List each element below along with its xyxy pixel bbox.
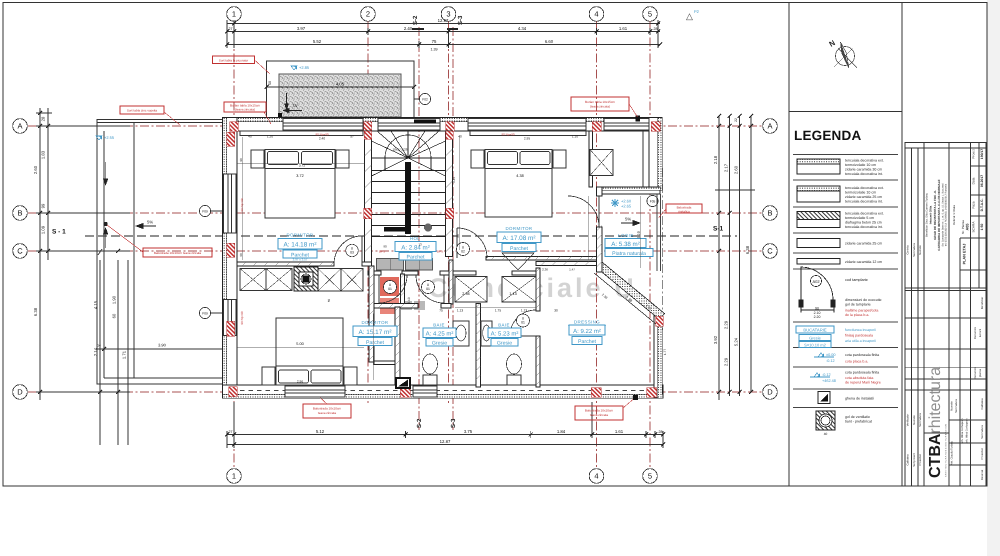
svg-text:de reperul Marii Negre: de reperul Marii Negre xyxy=(845,381,881,385)
svg-text:Beneficiar: Beneficiar xyxy=(980,297,984,310)
svg-text:90: 90 xyxy=(383,245,387,249)
svg-text:BF 5: BF 5 xyxy=(379,250,386,254)
svg-text:Arh. Claudiu Turlanu: Arh. Claudiu Turlanu xyxy=(951,441,954,465)
svg-text:2.60: 2.60 xyxy=(734,165,739,174)
svg-text:BAIE: BAIE xyxy=(433,323,445,328)
svg-text:02: 02 xyxy=(461,250,465,254)
svg-text:12.87: 12.87 xyxy=(438,18,449,23)
svg-text:99: 99 xyxy=(41,203,46,208)
svg-text:75: 75 xyxy=(432,39,437,44)
svg-text:termoizolatie 10 cm: termoizolatie 10 cm xyxy=(845,191,876,195)
svg-text:F05: F05 xyxy=(650,199,656,203)
svg-text:Parchet: Parchet xyxy=(510,246,528,252)
svg-text:DRESSING: DRESSING xyxy=(574,320,600,325)
svg-text:Denumire: Denumire xyxy=(973,366,977,379)
svg-text:Nr. Plansa: Nr. Plansa xyxy=(961,220,965,234)
svg-text:A: 2.84 m²: A: 2.84 m² xyxy=(401,244,430,251)
svg-text:plansa: plansa xyxy=(978,368,982,377)
svg-text:lucrarii: lucrarii xyxy=(978,329,982,338)
svg-text:metalica: metalica xyxy=(678,209,690,213)
svg-text:+2.85: +2.85 xyxy=(299,65,310,70)
svg-text:A: 4.25 m²: A: 4.25 m² xyxy=(426,331,454,338)
svg-text:S - 1: S - 1 xyxy=(52,229,66,236)
svg-text:B: B xyxy=(17,209,22,218)
svg-text:△: △ xyxy=(686,11,693,21)
svg-text:1.83: 1.83 xyxy=(41,150,46,159)
svg-text:40: 40 xyxy=(248,135,252,139)
svg-text:03: 03 xyxy=(350,251,354,255)
svg-text:Data: Data xyxy=(972,177,976,184)
svg-text:tencuiala decorativa int.: tencuiala decorativa int. xyxy=(845,225,883,229)
svg-text:ghena de instalatii: ghena de instalatii xyxy=(845,397,874,401)
svg-text:2.36: 2.36 xyxy=(462,292,469,296)
svg-text:teava zincata: teava zincata xyxy=(318,411,337,415)
svg-text:cod tamplarie: cod tamplarie xyxy=(845,278,868,282)
svg-text:S=10.10 m2: S=10.10 m2 xyxy=(804,342,826,347)
svg-text:zidarie caramida 25 cm: zidarie caramida 25 cm xyxy=(845,195,882,199)
svg-text:75: 75 xyxy=(439,309,443,313)
svg-text:tencuiala decorativa int.: tencuiala decorativa int. xyxy=(845,172,883,176)
svg-text:A: 14.18 m²: A: 14.18 m² xyxy=(283,242,316,249)
svg-text:2.29: 2.29 xyxy=(724,357,729,366)
svg-text:14: 14 xyxy=(97,344,101,348)
svg-text:90: 90 xyxy=(456,234,460,238)
svg-text:Balustrada 10x10cm teava zinca: Balustrada 10x10cm teava zincata xyxy=(154,251,202,255)
svg-text:tencuiala decorativa ext.: tencuiala decorativa ext. xyxy=(845,212,884,216)
svg-text:.28: .28 xyxy=(658,430,663,434)
svg-text:zidarie caramida 30 cm: zidarie caramida 30 cm xyxy=(845,168,882,172)
svg-text:P2: P2 xyxy=(694,9,700,14)
svg-text:3.97 x 3.57: 3.97 x 3.57 xyxy=(293,258,308,262)
svg-text:PLAN ETAJ: PLAN ETAJ xyxy=(963,244,967,265)
svg-text:5.12: 5.12 xyxy=(316,429,325,434)
svg-text:A: A xyxy=(17,122,22,131)
svg-text:+2.65: +2.65 xyxy=(621,204,632,209)
svg-text:Semnatura: Semnatura xyxy=(980,425,984,439)
svg-text:aria utila a incaperii: aria utila a incaperii xyxy=(845,339,876,343)
svg-text:LOGIE: LOGIE xyxy=(618,233,633,238)
svg-text:57: 57 xyxy=(350,135,354,139)
svg-text:01: 01 xyxy=(388,287,392,291)
svg-text:S-2: S-2 xyxy=(416,418,423,428)
svg-text:Intocmit Oltia: Intocmit Oltia xyxy=(929,205,933,224)
svg-text:2.60: 2.60 xyxy=(33,165,38,174)
svg-text:D: D xyxy=(767,388,773,397)
svg-text:SCARA: SCARA xyxy=(972,221,976,233)
svg-text:3.92: 3.92 xyxy=(713,335,718,344)
svg-text:Referat nr./Data: Referat nr./Data xyxy=(952,205,956,225)
svg-text:2: 2 xyxy=(366,10,370,19)
svg-text:3.72: 3.72 xyxy=(296,174,303,178)
svg-text:termoizolatie 10 cm: termoizolatie 10 cm xyxy=(845,163,876,167)
svg-text:2.19: 2.19 xyxy=(637,231,641,238)
svg-text:Semnatura: Semnatura xyxy=(954,399,958,413)
svg-text:+462.48: +462.48 xyxy=(822,379,836,383)
svg-text:A: 17.08 m²: A: 17.08 m² xyxy=(502,235,535,242)
svg-text:2.17: 2.17 xyxy=(724,163,729,172)
svg-text:tencuiala decorativa ext.: tencuiala decorativa ext. xyxy=(845,159,884,163)
svg-text:BUCATARIE: BUCATARIE xyxy=(803,327,827,332)
svg-text:3.45: 3.45 xyxy=(452,177,456,183)
svg-text:cota pardoseala finita: cota pardoseala finita xyxy=(845,353,879,357)
svg-text:Arh. Mihai Corhapean: Arh. Mihai Corhapean xyxy=(961,418,964,444)
svg-text:30: 30 xyxy=(554,309,558,313)
svg-text:1.84: 1.84 xyxy=(557,429,566,434)
svg-text:1.61: 1.61 xyxy=(615,429,624,434)
svg-text:3.75: 3.75 xyxy=(464,429,473,434)
svg-text:1: 1 xyxy=(232,10,236,19)
svg-text:(teava zincata): (teava zincata) xyxy=(590,105,610,109)
svg-text:2.40: 2.40 xyxy=(404,26,413,31)
svg-text:A: A xyxy=(767,122,772,131)
svg-text:.27: .27 xyxy=(228,27,233,31)
svg-text:40: 40 xyxy=(458,135,462,139)
svg-text:A02: A02 xyxy=(812,279,820,284)
svg-text:Burlan tabla 10x15cm: Burlan tabla 10x15cm xyxy=(585,100,615,104)
svg-text:TN: TN xyxy=(292,103,297,108)
svg-text:1: 1 xyxy=(232,472,236,481)
svg-text:S-1: S-1 xyxy=(713,226,724,233)
svg-text:1.13: 1.13 xyxy=(509,292,516,296)
svg-text:Balustrada 10x10cm: Balustrada 10x10cm xyxy=(313,407,342,411)
svg-text:Semnatura: Semnatura xyxy=(918,413,922,427)
svg-text:D: D xyxy=(17,388,23,397)
svg-text:6.60: 6.60 xyxy=(545,39,554,44)
svg-text:DORMITOR: DORMITOR xyxy=(286,233,313,238)
svg-text:18x17.5/28: 18x17.5/28 xyxy=(393,148,408,152)
svg-text:6.38: 6.38 xyxy=(33,307,38,316)
svg-text:diafragma beton 25 cm: diafragma beton 25 cm xyxy=(845,221,882,225)
svg-text:Numele: Numele xyxy=(918,245,922,255)
svg-text:Parchet: Parchet xyxy=(366,340,384,346)
svg-text:2.96: 2.96 xyxy=(297,380,303,384)
svg-text:50: 50 xyxy=(268,81,272,85)
svg-text:.27: .27 xyxy=(228,430,233,434)
svg-text:F09: F09 xyxy=(202,209,208,213)
svg-text:tel. 0722.000.000 CUI RO34562: tel. 0722.000.000 CUI RO345621 J40/0000/… xyxy=(945,183,948,246)
svg-text:±0.00: ±0.00 xyxy=(826,353,835,357)
svg-text:40: 40 xyxy=(824,432,828,436)
svg-text:Gresie: Gresie xyxy=(809,335,822,340)
svg-text:A: 5.23 m²: A: 5.23 m² xyxy=(491,331,519,338)
svg-text:LEGENDA: LEGENDA xyxy=(794,128,861,143)
svg-text:4: 4 xyxy=(594,10,598,19)
svg-text:finisaj pardoseala: finisaj pardoseala xyxy=(845,334,873,338)
svg-text:01: 01 xyxy=(521,321,525,325)
svg-text:Sort tabla zinc vopsita: Sort tabla zinc vopsita xyxy=(127,108,158,112)
svg-text:2.29: 2.29 xyxy=(724,320,729,329)
svg-text:1.75: 1.75 xyxy=(495,309,501,313)
svg-text:1.13: 1.13 xyxy=(521,309,527,313)
svg-text:1.71: 1.71 xyxy=(122,350,127,359)
svg-text:cota pardoseala finita: cota pardoseala finita xyxy=(845,371,879,375)
svg-text:D.T.A.C.: D.T.A.C. xyxy=(980,199,984,212)
svg-text:5.52: 5.52 xyxy=(313,39,322,44)
svg-text:06.2017: 06.2017 xyxy=(980,175,984,187)
svg-text:(teava zincata): (teava zincata) xyxy=(235,107,255,111)
svg-text:1.77: 1.77 xyxy=(663,349,667,355)
svg-text:A: 9.22 m²: A: 9.22 m² xyxy=(573,328,601,335)
svg-text:tiant - prefabricat: tiant - prefabricat xyxy=(845,420,872,424)
svg-text:teava zincata: teava zincata xyxy=(590,413,609,417)
svg-text:1.61: 1.61 xyxy=(619,26,628,31)
svg-text:-0.12: -0.12 xyxy=(822,373,831,377)
svg-text:90 Np=90: 90 Np=90 xyxy=(240,311,244,324)
svg-text:28: 28 xyxy=(41,116,46,121)
svg-text:Numele: Numele xyxy=(912,415,916,425)
svg-text:cota placa b.a.: cota placa b.a. xyxy=(845,360,868,364)
svg-text:Piatra naturala: Piatra naturala xyxy=(612,251,646,257)
svg-text:12.87: 12.87 xyxy=(440,439,451,444)
svg-text:2.95: 2.95 xyxy=(524,137,530,141)
svg-text:DORMITOR: DORMITOR xyxy=(361,320,388,325)
svg-text:HOL: HOL xyxy=(410,236,420,241)
svg-text:1.90: 1.90 xyxy=(112,295,117,304)
svg-text:190/17: 190/17 xyxy=(980,149,984,159)
svg-text:5.24: 5.24 xyxy=(734,337,739,346)
svg-text:S-3: S-3 xyxy=(450,418,457,428)
svg-text:termoizolatie 5 cm: termoizolatie 5 cm xyxy=(845,216,874,220)
svg-text:4.34: 4.34 xyxy=(518,26,527,31)
svg-text:60: 60 xyxy=(112,313,117,318)
svg-text:13: 13 xyxy=(418,243,422,247)
svg-text:1.47: 1.47 xyxy=(569,268,575,272)
svg-text:B: B xyxy=(767,209,772,218)
svg-text:1.39: 1.39 xyxy=(431,48,438,52)
svg-text:inaltime parapet/cota: inaltime parapet/cota xyxy=(845,309,878,313)
svg-text:Sort tabla la picurator: Sort tabla la picurator xyxy=(219,58,248,62)
svg-text:de la placa b.a.: de la placa b.a. xyxy=(845,313,869,317)
svg-text:4.38: 4.38 xyxy=(516,174,523,178)
svg-text:Calitatea: Calitatea xyxy=(906,454,910,465)
svg-text:Verificator: Verificator xyxy=(906,414,910,427)
svg-text:1.13: 1.13 xyxy=(457,309,463,313)
svg-text:Proect: Proect xyxy=(972,149,976,158)
svg-text:Parchet: Parchet xyxy=(407,255,425,261)
svg-text:gol de tamplarie: gol de tamplarie xyxy=(845,303,871,307)
svg-text:2.36: 2.36 xyxy=(542,268,548,272)
svg-text:functiunea incaperii: functiunea incaperii xyxy=(845,328,876,332)
svg-text:4.05: 4.05 xyxy=(336,82,345,87)
svg-text:DORMITOR: DORMITOR xyxy=(505,226,532,231)
svg-text:Semnatura: Semnatura xyxy=(912,243,916,257)
svg-text:A R H I T E C T U R A + D E S: A R H I T E C T U R A + D E S I G N + U … xyxy=(945,424,948,477)
svg-text:+2.55: +2.55 xyxy=(104,135,115,140)
svg-text:90 Np=90: 90 Np=90 xyxy=(501,133,514,137)
svg-text:3.72: 3.72 xyxy=(299,164,305,168)
svg-text:1:50: 1:50 xyxy=(980,223,984,230)
svg-text:zidarie caramida 12 cm: zidarie caramida 12 cm xyxy=(845,260,882,264)
svg-text:BF 5: BF 5 xyxy=(437,250,444,254)
svg-text:A: 15.17 m²: A: 15.17 m² xyxy=(358,329,391,336)
svg-text:5%: 5% xyxy=(147,220,153,225)
svg-text:Desenat: Desenat xyxy=(980,470,984,481)
svg-text:Gresie: Gresie xyxy=(432,341,447,347)
svg-text:90 Np=90: 90 Np=90 xyxy=(240,198,244,211)
svg-text:dimensiuni de executie: dimensiuni de executie xyxy=(845,298,882,302)
svg-text:3.97: 3.97 xyxy=(297,26,306,31)
svg-text:C: C xyxy=(17,247,23,256)
svg-text:Numele: Numele xyxy=(950,401,954,411)
svg-text:Sef proiect: Sef proiect xyxy=(912,453,916,467)
svg-text:5%: 5% xyxy=(625,217,631,222)
svg-text:zidarie caramida 25 cm: zidarie caramida 25 cm xyxy=(845,242,882,246)
svg-text:60: 60 xyxy=(239,253,243,257)
svg-text:tencuiala decorativa ext.: tencuiala decorativa ext. xyxy=(845,186,884,190)
svg-text:CATEGORIA DE IMPORTANTA -C-C-F: CATEGORIA DE IMPORTANTA -C-C-FB NORMALE xyxy=(937,179,941,250)
svg-text:Calitatea: Calitatea xyxy=(980,398,984,409)
svg-text:2.18: 2.18 xyxy=(713,155,718,164)
svg-text:Proiectat: Proiectat xyxy=(918,454,922,465)
svg-text:5.00: 5.00 xyxy=(296,342,303,346)
svg-text:6.38: 6.38 xyxy=(745,245,750,254)
svg-text:2.20: 2.20 xyxy=(814,315,821,319)
svg-text:BAIE: BAIE xyxy=(498,323,510,328)
svg-text:Parchet: Parchet xyxy=(578,339,596,345)
svg-text:F09: F09 xyxy=(202,311,208,315)
svg-text:90: 90 xyxy=(239,158,243,162)
svg-text:5: 5 xyxy=(648,10,652,19)
svg-text:Proiectat: Proiectat xyxy=(980,448,984,459)
svg-text:55: 55 xyxy=(327,299,331,303)
svg-text:Denumire: Denumire xyxy=(973,326,977,339)
svg-text:01: 01 xyxy=(426,287,430,291)
svg-text:Cerinta: Cerinta xyxy=(906,245,910,254)
svg-text:F02: F02 xyxy=(422,97,428,101)
svg-text:C: C xyxy=(767,247,773,256)
svg-text:cota absoluta fata: cota absoluta fata xyxy=(845,376,873,380)
svg-text:tencuiala decorativa int.: tencuiala decorativa int. xyxy=(845,200,883,204)
svg-text:5: 5 xyxy=(648,472,652,481)
svg-text:2.40: 2.40 xyxy=(319,137,325,141)
svg-text:Balustrada 10x10cm: Balustrada 10x10cm xyxy=(585,409,614,413)
svg-text:gol de ventilatie: gol de ventilatie xyxy=(845,415,870,419)
svg-text:1.10: 1.10 xyxy=(572,135,578,139)
svg-text:.28: .28 xyxy=(653,27,658,31)
svg-text:4: 4 xyxy=(594,472,598,481)
svg-text:CTBArhitectura: CTBArhitectura xyxy=(927,367,944,478)
svg-text:-0.12: -0.12 xyxy=(826,359,835,363)
svg-text:1.20: 1.20 xyxy=(267,135,273,139)
svg-text:22: 22 xyxy=(734,118,738,122)
svg-text:Faza: Faza xyxy=(972,201,976,208)
svg-text:Gresie: Gresie xyxy=(497,341,512,347)
svg-text:1.09: 1.09 xyxy=(41,225,46,234)
svg-text:90 Np=90: 90 Np=90 xyxy=(315,133,328,137)
svg-text:Arh. Mihai Corhapean: Arh. Mihai Corhapean xyxy=(966,418,969,444)
svg-text:2.10: 2.10 xyxy=(407,297,411,303)
svg-text:3.90: 3.90 xyxy=(158,343,167,348)
svg-text:A05: A05 xyxy=(966,224,970,231)
svg-text:A: 5.38 m²: A: 5.38 m² xyxy=(611,241,640,248)
